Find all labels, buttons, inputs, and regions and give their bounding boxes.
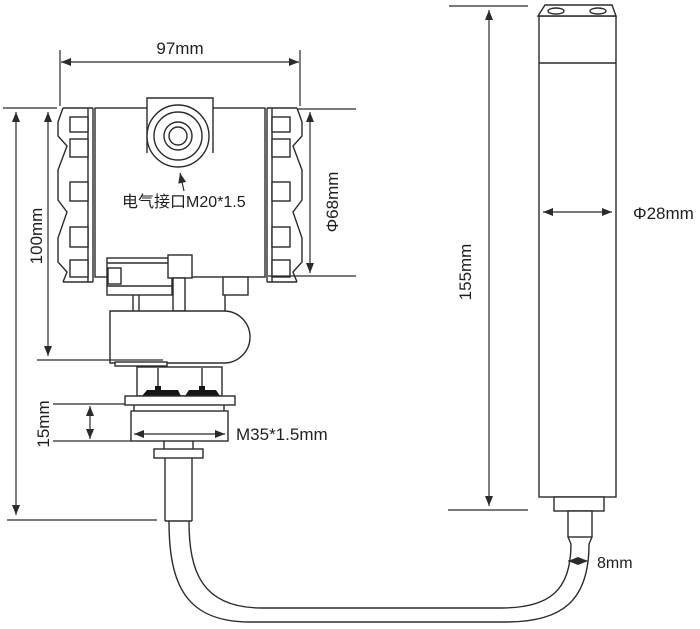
right-ribbed-cover	[267, 108, 302, 282]
housing-step	[223, 277, 248, 295]
thread-length-label: 15mm	[34, 400, 53, 447]
housing-height-label: 100mm	[27, 208, 46, 265]
probe-body	[539, 16, 616, 497]
bracket-block	[168, 255, 192, 278]
thread-nut	[131, 411, 228, 441]
flange-and-nut	[125, 396, 235, 521]
thread-spec-label: M35*1.5mm	[236, 425, 328, 444]
probe-step	[554, 497, 604, 511]
cable-gland-collar	[154, 449, 203, 458]
probe-length-label: 155mm	[456, 244, 475, 301]
dimension-probe-length: 155mm	[448, 6, 528, 510]
connecting-cable	[169, 521, 589, 622]
entry-outer-circle	[147, 105, 209, 167]
dimension-thread-length: 15mm	[34, 400, 131, 447]
probe-gland	[568, 511, 592, 537]
dimension-housing-width: 97mm	[60, 39, 300, 106]
left-ribbed-cover	[58, 108, 93, 282]
flange-plate	[125, 396, 235, 405]
housing-width-label: 97mm	[156, 39, 203, 58]
probe-diameter-label: Φ28mm	[633, 204, 694, 223]
drawing-canvas: 97mm 100mm 15mm Φ68mm 电气接口M20*1.5 M35*1.…	[0, 0, 700, 629]
dimension-cable-diameter: 8mm	[568, 555, 633, 572]
bracket-post	[173, 278, 185, 311]
process-body	[110, 311, 250, 366]
transmitter-housing	[58, 98, 302, 521]
electrical-interface-label: 电气接口M20*1.5	[122, 193, 246, 211]
housing-diameter-label: Φ68mm	[323, 172, 342, 233]
probe-top-face	[538, 5, 616, 16]
dimension-drawing: 97mm 100mm 15mm Φ68mm 电气接口M20*1.5 M35*1.…	[0, 0, 700, 629]
level-probe	[538, 5, 616, 544]
cable-diameter-label: 8mm	[597, 555, 633, 572]
connection-neck	[137, 367, 222, 396]
